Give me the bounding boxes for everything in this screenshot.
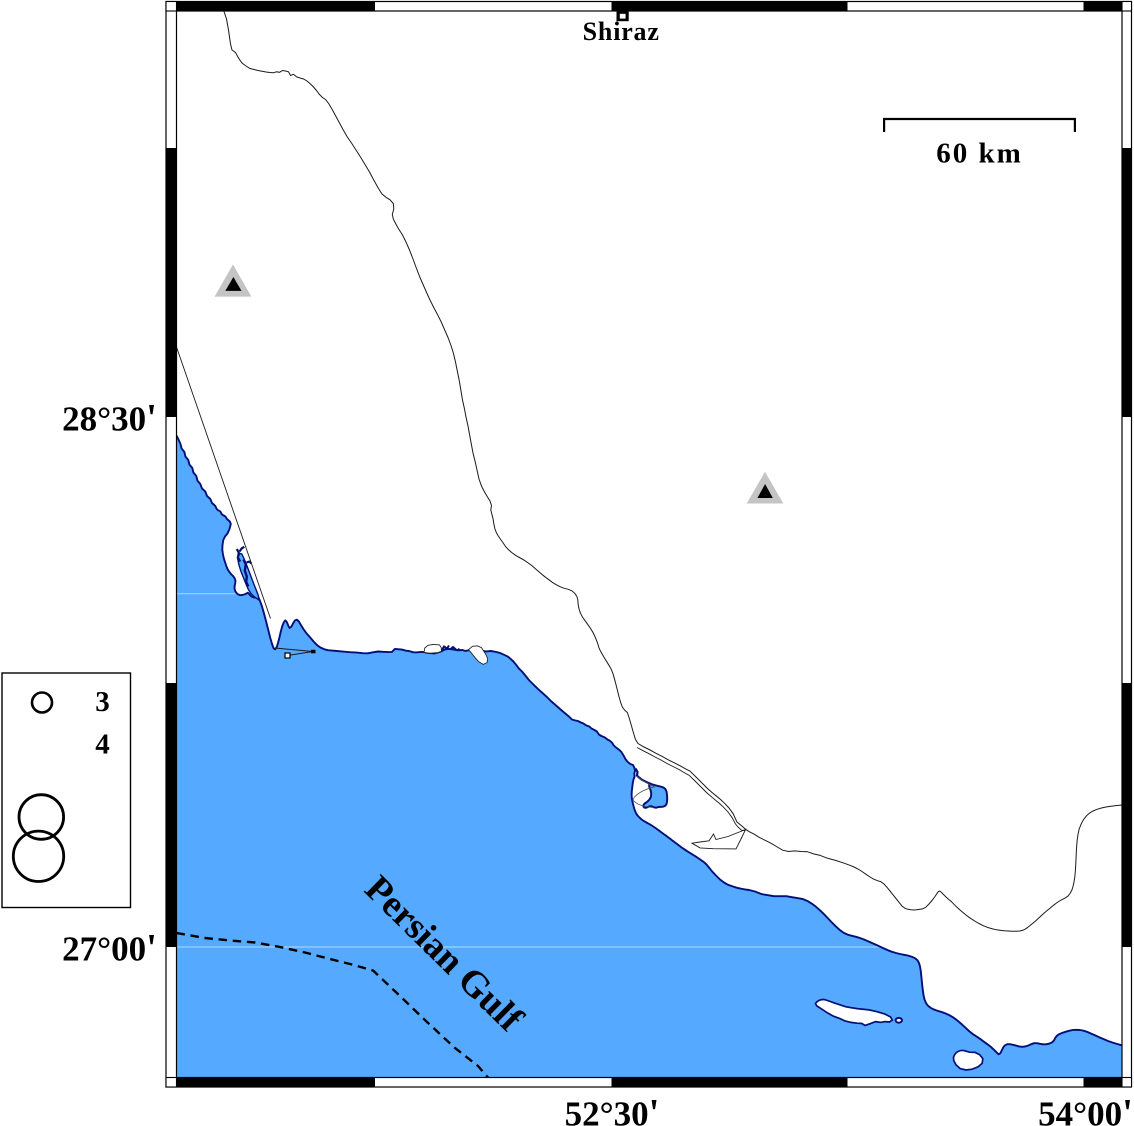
- svg-text:27°00': 27°00': [62, 927, 157, 970]
- svg-text:54°00': 54°00': [1038, 1092, 1133, 1126]
- svg-text:Shiraz: Shiraz: [583, 17, 660, 46]
- svg-text:28°30': 28°30': [62, 397, 157, 440]
- svg-text:4: 4: [95, 729, 110, 761]
- svg-text:60 km: 60 km: [936, 138, 1023, 170]
- svg-text:52°30': 52°30': [565, 1092, 660, 1126]
- svg-text:3: 3: [95, 686, 110, 718]
